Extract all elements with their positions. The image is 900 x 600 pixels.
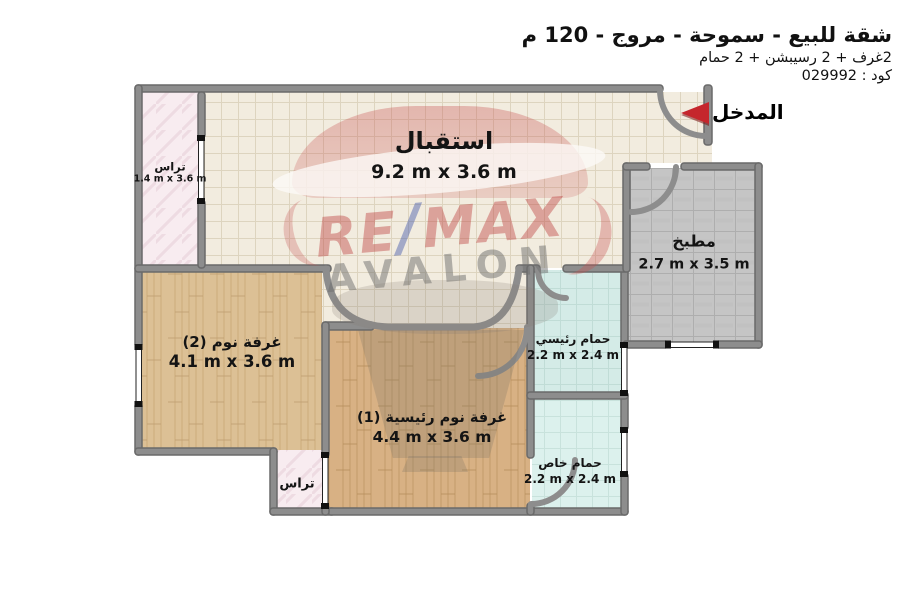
private-bathroom-floor	[532, 393, 623, 510]
listing-code: كود : 029992	[522, 68, 892, 84]
entrance-label: المدخل	[712, 100, 784, 124]
floorplan-drawing	[0, 0, 900, 600]
terrace-bottom-window	[321, 452, 329, 509]
bedroom2-label: غرفة نوم (2) 4.1 m x 3.6 m	[169, 333, 295, 371]
private-bathroom-window	[620, 427, 628, 477]
listing-header: شقة للبيع - سموحة - مروج - 120 م 2غرف + …	[522, 22, 892, 84]
entrance-arrow-icon	[681, 102, 709, 124]
master-bedroom-label: غرفة نوم رئيسية (1) 4.4 m x 3.6 m	[357, 410, 507, 446]
terrace-bottom-label: تراس	[279, 477, 314, 492]
kitchen-window	[665, 341, 719, 349]
floorplan-page: RE/MAX AVALON شقة للبيع - سموحة - مروج -…	[0, 0, 900, 600]
main-bathroom-label: حمام رئيسي 2.2 m x 2.4 m	[527, 332, 619, 362]
main-bathroom-window	[620, 342, 628, 396]
reception-label: استقبال 9.2 m x 3.6 m	[371, 127, 517, 183]
terrace-left-label: تراس 1.4 m x 3.6 m	[134, 160, 207, 185]
listing-title: شقة للبيع - سموحة - مروج - 120 م	[522, 22, 892, 48]
private-bathroom-label: حمام خاص 2.2 m x 2.4 m	[524, 456, 616, 486]
kitchen-label: مطبخ 2.7 m x 3.5 m	[638, 232, 749, 273]
bedroom2-window	[135, 344, 143, 407]
listing-subtitle: 2غرف + 2 رسيبشن + 2 حمام	[522, 50, 892, 66]
